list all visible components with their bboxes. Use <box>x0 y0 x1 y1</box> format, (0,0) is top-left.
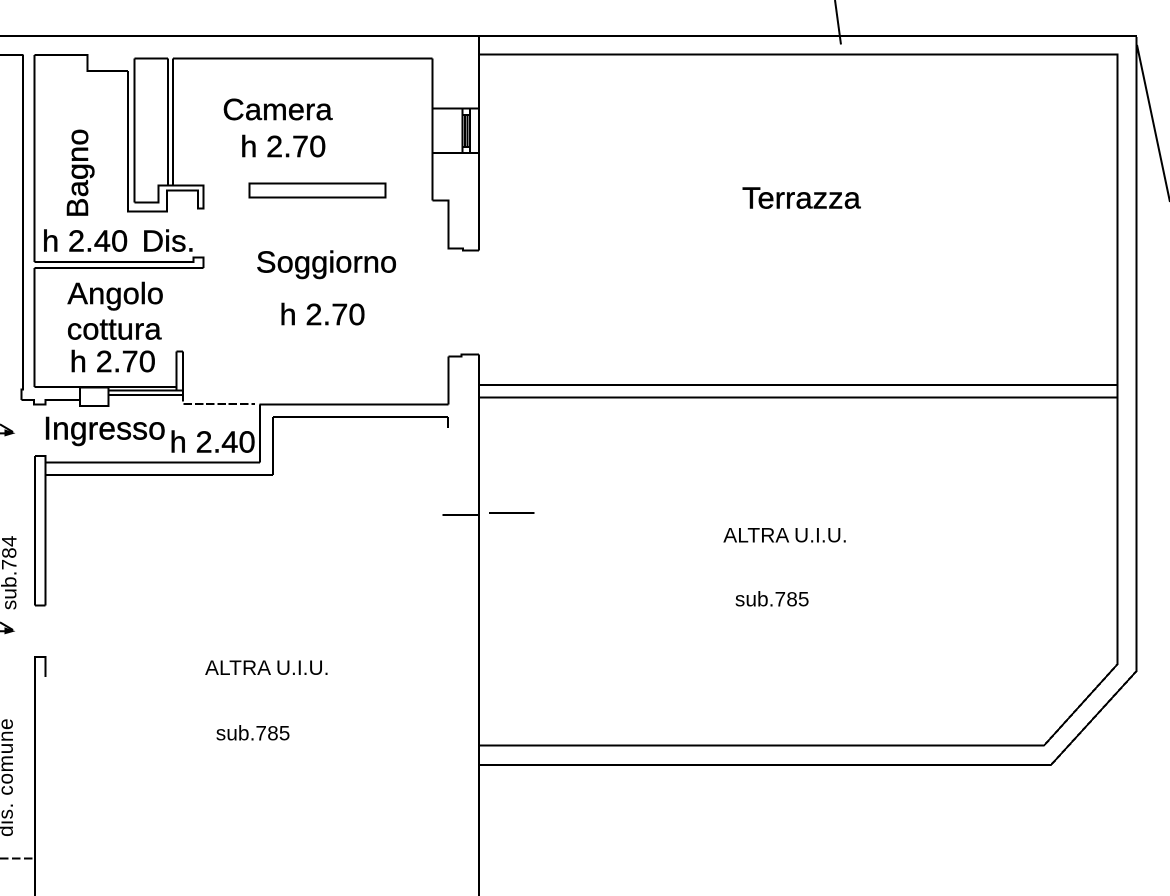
svg-text:sub.784: sub.784 <box>0 535 22 610</box>
svg-text:Bagno: Bagno <box>60 128 95 218</box>
svg-text:Camera: Camera <box>222 92 333 127</box>
svg-text:h 2.70: h 2.70 <box>70 344 156 379</box>
svg-text:ALTRA U.I.U.: ALTRA U.I.U. <box>723 525 847 548</box>
svg-text:h 2.40: h 2.40 <box>42 224 128 259</box>
svg-text:ALTRA U.I.U.: ALTRA U.I.U. <box>205 657 329 680</box>
svg-text:sub.785: sub.785 <box>216 723 291 746</box>
svg-text:h 2.40: h 2.40 <box>170 425 256 460</box>
svg-text:h 2.70: h 2.70 <box>240 129 326 164</box>
svg-text:h 2.70: h 2.70 <box>279 297 365 332</box>
svg-text:dis. comune: dis. comune <box>0 718 18 837</box>
svg-text:Ingresso: Ingresso <box>43 410 166 446</box>
svg-text:Terrazza: Terrazza <box>742 181 862 216</box>
svg-text:Dis.: Dis. <box>142 224 195 259</box>
svg-text:Soggiorno: Soggiorno <box>256 245 397 280</box>
svg-text:cottura: cottura <box>67 312 163 347</box>
svg-text:Angolo: Angolo <box>67 276 164 311</box>
svg-text:sub.785: sub.785 <box>735 589 810 612</box>
